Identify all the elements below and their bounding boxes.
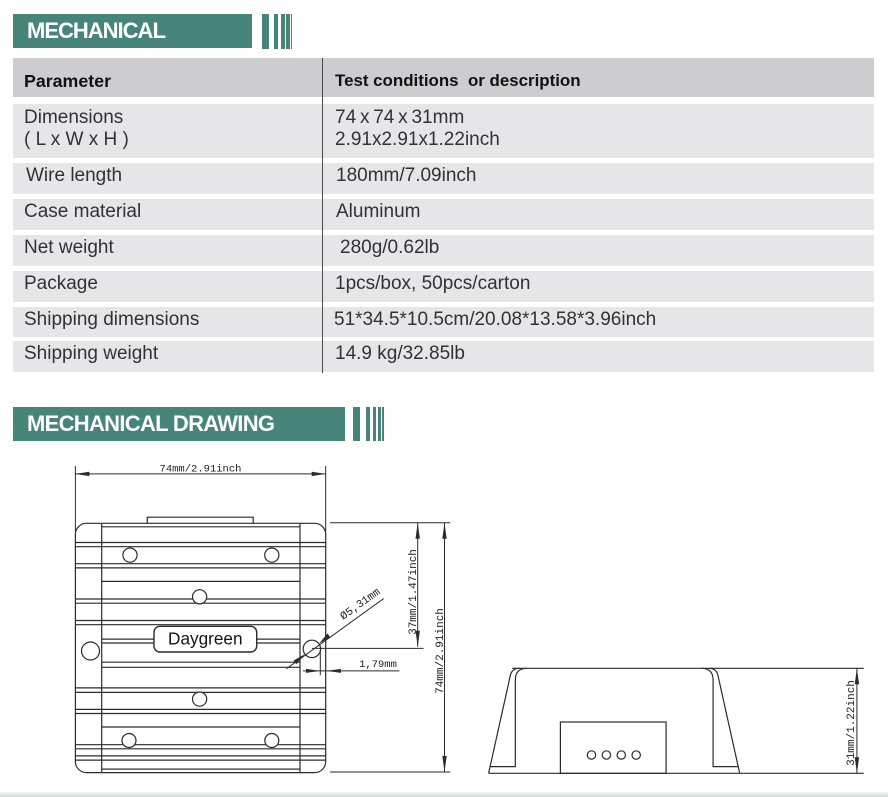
svg-text:Daygreen: Daygreen <box>168 629 243 649</box>
svg-text:74mm/2.91inch: 74mm/2.91inch <box>160 464 242 476</box>
svg-text:74mm/2.91inch: 74mm/2.91inch <box>435 608 447 694</box>
svg-text:1,79mm: 1,79mm <box>359 659 397 671</box>
svg-text:37mm/1.47inch: 37mm/1.47inch <box>408 549 420 635</box>
svg-text:Ø5,31mm: Ø5,31mm <box>339 586 384 623</box>
svg-text:31mm/1.22inch: 31mm/1.22inch <box>846 680 858 766</box>
